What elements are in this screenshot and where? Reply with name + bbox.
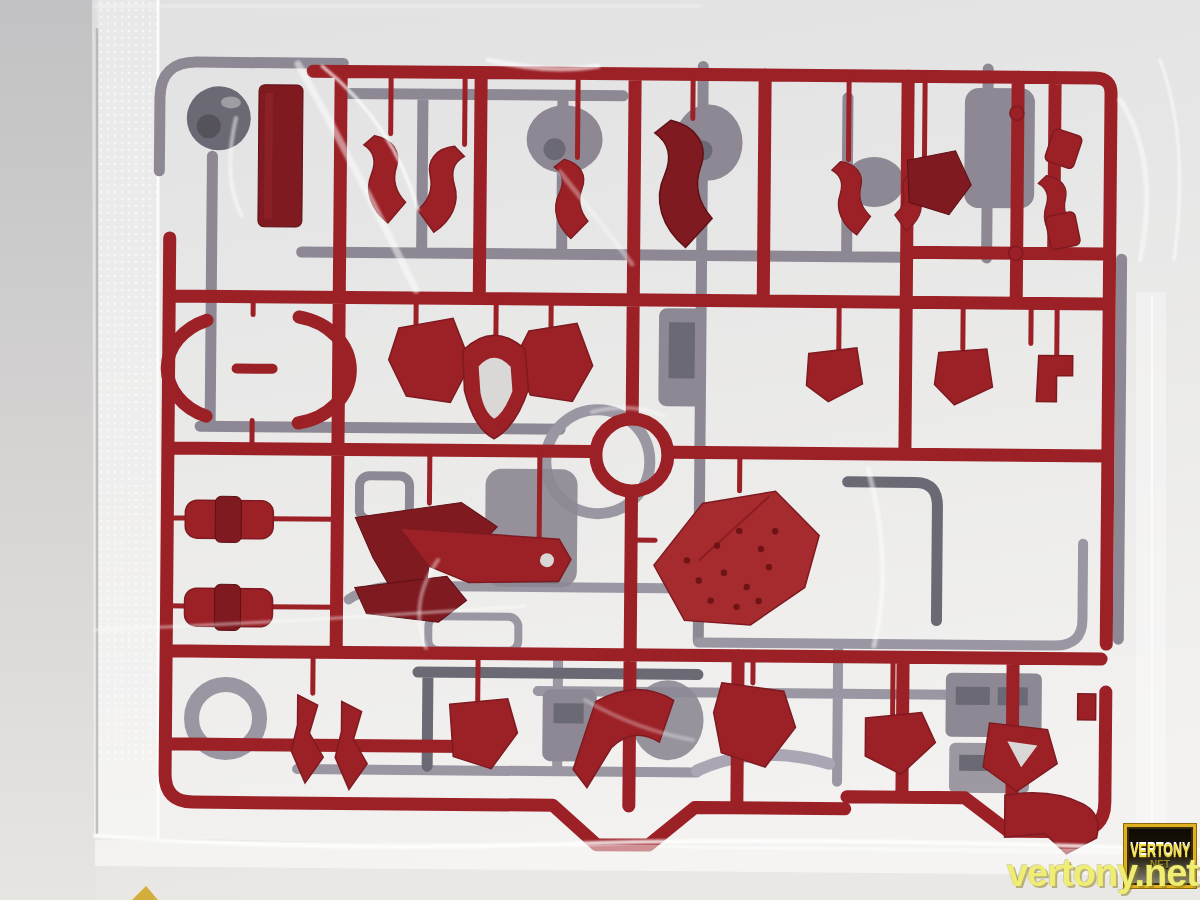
bagged-sprue-photo [0, 0, 1200, 900]
photo-stage [0, 0, 1200, 900]
watermark-text: vertony.net [1007, 852, 1198, 895]
